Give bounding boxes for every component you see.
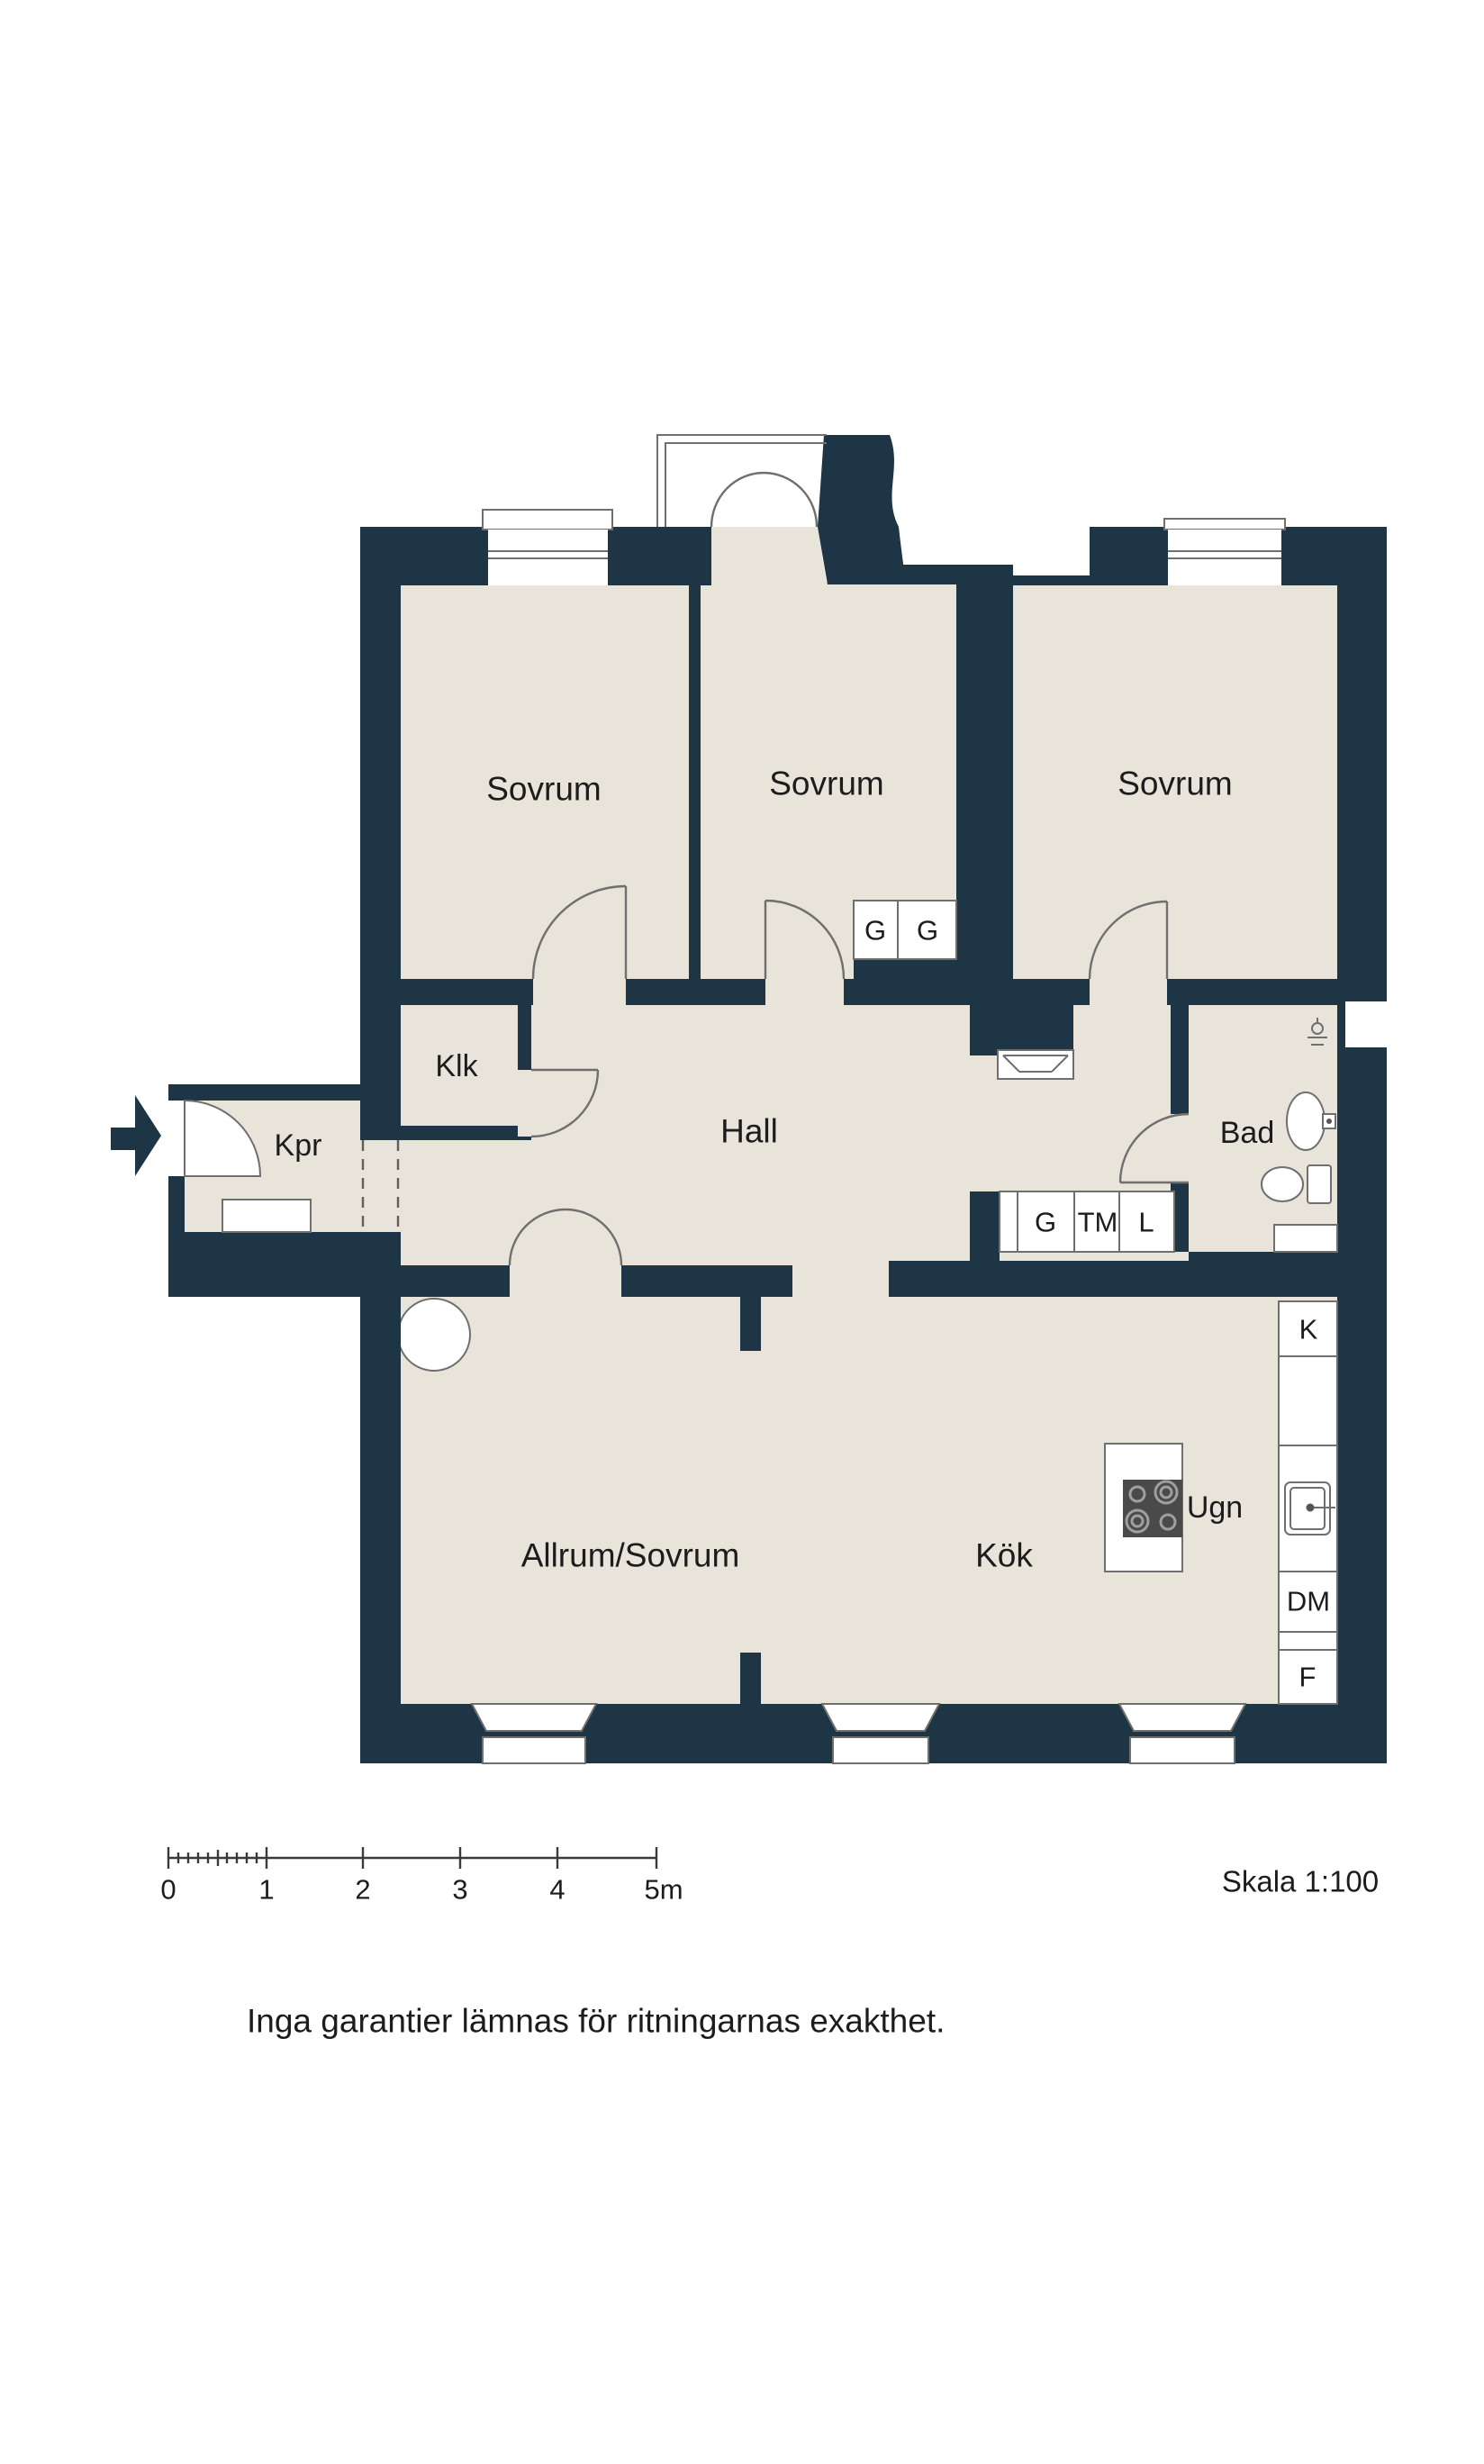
dishwasher-label: DM <box>1287 1586 1330 1617</box>
room-label-hall: Hall <box>720 1113 778 1150</box>
closet-row-g-tm-l: G TM L <box>1000 1191 1174 1252</box>
window-top-right <box>1164 519 1285 585</box>
wardrobe-hall-label: G <box>1035 1207 1056 1238</box>
french-doors-icon <box>711 473 817 527</box>
wall-stub-bottom <box>740 1653 761 1704</box>
stove-icon <box>1123 1480 1182 1537</box>
room-label-bedroom-right: Sovrum <box>1118 765 1232 802</box>
washing-machine-label: TM <box>1078 1207 1118 1238</box>
room-label-bad: Bad <box>1220 1116 1275 1150</box>
room-label-kitchen: Kök <box>975 1537 1033 1574</box>
bad-bench <box>1274 1225 1337 1252</box>
corner-stove-icon <box>398 1299 470 1371</box>
scale-bar: 0 1 2 3 4 5m <box>160 1847 683 1906</box>
oven-label: Ugn <box>1187 1490 1243 1525</box>
floor-plan: G G G TM L K DM F <box>0 0 1484 2464</box>
wall-stub-top <box>740 1297 761 1351</box>
balcony <box>657 435 827 527</box>
fireplace-vent-icon <box>998 1050 1073 1079</box>
wardrobe-gg: G G <box>854 901 956 959</box>
kitchen-sink-icon <box>1285 1482 1335 1535</box>
scale-label-4: 4 <box>549 1874 565 1906</box>
scale-label-0: 0 <box>160 1874 176 1906</box>
linen-closet-label: L <box>1138 1207 1154 1238</box>
fridge-label: K <box>1299 1314 1318 1345</box>
hall-floor <box>531 1005 1189 1297</box>
scale-label-5m: 5m <box>644 1874 683 1906</box>
entrance-arrow-icon <box>111 1095 161 1176</box>
room-label-kpr: Kpr <box>275 1128 322 1163</box>
scale-label-1: 1 <box>258 1874 274 1906</box>
scale-note: Skala 1:100 <box>1222 1865 1379 1898</box>
room-label-klk: Klk <box>435 1049 478 1083</box>
kitchen-island <box>1105 1444 1182 1572</box>
wardrobe-a-label: G <box>864 915 886 947</box>
kitchen-counter: K DM F <box>1279 1301 1337 1704</box>
freezer-label: F <box>1299 1662 1317 1693</box>
room-label-bedroom-left: Sovrum <box>486 771 601 808</box>
entrance-opening <box>168 1101 185 1176</box>
room-label-bedroom-middle: Sovrum <box>769 765 883 802</box>
floor-plan-page: { "colors": { "wall": "#1d3544", "floor"… <box>0 0 1484 2464</box>
kpr-cabinet <box>222 1200 311 1232</box>
curved-wall <box>818 435 906 584</box>
scale-label-2: 2 <box>355 1874 370 1906</box>
toilet-icon <box>1262 1165 1331 1203</box>
balcony-door-throat <box>700 527 827 584</box>
disclaimer-text: Inga garantier lämnas för ritningarnas e… <box>247 2003 945 2040</box>
wardrobe-b-label: G <box>917 915 938 947</box>
window-top-left <box>483 510 612 585</box>
scale-label-3: 3 <box>452 1874 467 1906</box>
right-wall-notch <box>1345 1001 1387 1047</box>
room-label-living: Allrum/Sovrum <box>521 1537 740 1574</box>
